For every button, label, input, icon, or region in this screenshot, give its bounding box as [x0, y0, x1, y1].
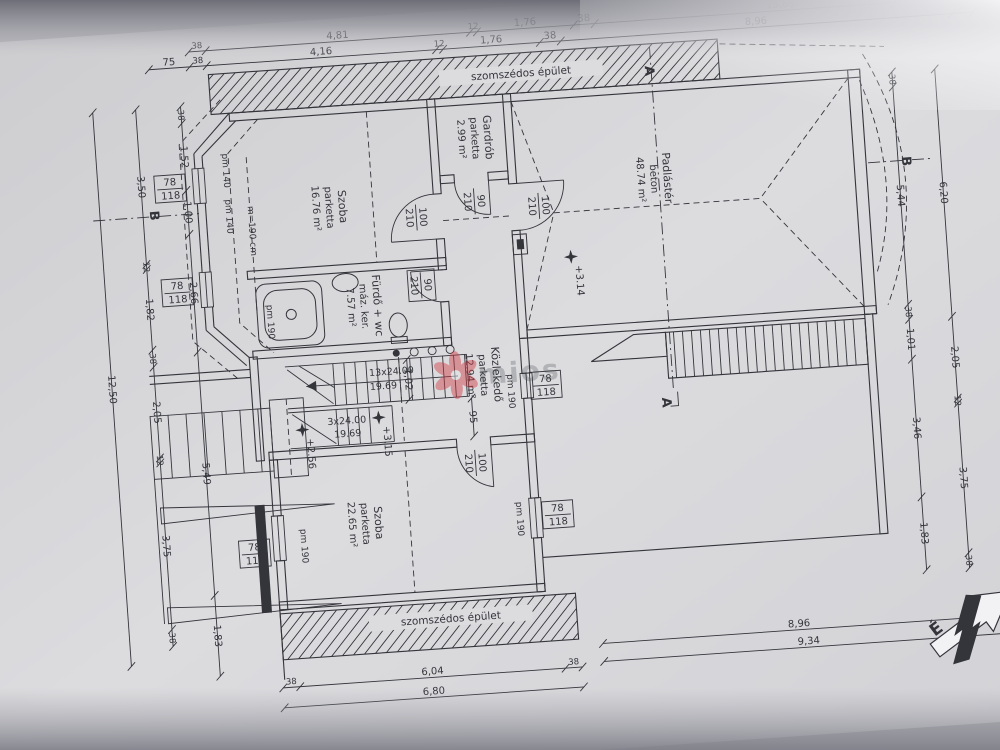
- svg-text:210: 210: [461, 192, 473, 212]
- dimension-label: 38: [166, 632, 177, 643]
- dimension-label: 38: [175, 109, 186, 120]
- dimension-label: 38: [568, 657, 579, 668]
- floor-plan-canvas: 384,81121,763815,6675384,16121,76388,963…: [0, 0, 1000, 750]
- section-marker-b-right: B: [898, 156, 914, 167]
- svg-text:100: 100: [539, 196, 551, 216]
- section-marker-b-left: B: [146, 210, 162, 221]
- dimension-label: 8,96: [788, 618, 811, 631]
- svg-text:Szoba: Szoba: [371, 506, 386, 540]
- dimension-label: 38: [902, 306, 913, 317]
- room-label-gardrob: Gardrób parketta 2.99 m²: [454, 115, 496, 162]
- svg-text:118: 118: [536, 387, 556, 399]
- svg-text:118: 118: [161, 190, 181, 202]
- level-value: +3.15: [380, 426, 393, 457]
- dimension-label: 12,50: [105, 375, 118, 404]
- dimension-label: 1,83: [917, 522, 930, 545]
- floor-plan-sheet: 384,81121,763815,6675384,16121,76388,963…: [0, 0, 1000, 750]
- dimension-label: 12: [140, 261, 151, 272]
- dimension-label: 38: [963, 555, 974, 566]
- svg-text:78: 78: [170, 281, 183, 293]
- dimension-label: 3,46: [910, 417, 923, 440]
- svg-text:100: 100: [416, 207, 428, 227]
- watermark-text: mios: [477, 353, 562, 392]
- dimension-label: 1,52: [177, 146, 190, 169]
- svg-text:78: 78: [163, 177, 176, 189]
- svg-text:118: 118: [246, 555, 266, 567]
- photo-of-floor-plan: 384,81121,763815,6675384,16121,76388,963…: [0, 0, 1000, 750]
- svg-text:78: 78: [248, 542, 261, 554]
- dimension-label: 12: [952, 395, 963, 406]
- level-value: +3.14: [573, 265, 586, 296]
- svg-text:Szoba: Szoba: [335, 190, 350, 224]
- dimension-label: 38: [147, 353, 158, 364]
- svg-text:210: 210: [403, 208, 415, 228]
- dimension-label: 1,83: [211, 624, 224, 647]
- dimension-label: 1,82: [143, 298, 156, 321]
- stair-label-2b: 19.69: [334, 428, 362, 441]
- svg-text:118: 118: [549, 516, 569, 528]
- dimension-label: 12: [154, 455, 165, 466]
- dimension-label: 3,50: [134, 176, 147, 199]
- svg-text:100: 100: [475, 453, 487, 473]
- svg-text:118: 118: [168, 294, 188, 306]
- dimension-label: 75: [162, 57, 175, 69]
- dimension-label: 5,44: [894, 184, 907, 207]
- dimension-label: 1,00: [181, 201, 194, 224]
- level-value: +2.56: [304, 438, 317, 469]
- dimension-label: 2,05: [150, 401, 163, 424]
- svg-text:90: 90: [421, 278, 433, 291]
- svg-text:90: 90: [474, 194, 486, 207]
- dimension-label: 6,20: [937, 181, 950, 204]
- svg-text:210: 210: [407, 276, 419, 296]
- dimension-label: 6,04: [421, 666, 444, 679]
- section-marker-a-bottom: A: [658, 397, 674, 408]
- stair-label-1b: 19.69: [370, 380, 398, 393]
- dimension-label: 3,75: [957, 466, 970, 489]
- photo-highlight: [580, 0, 1000, 110]
- dimension-label: 95: [466, 410, 478, 423]
- dimension-label: 2,05: [948, 346, 961, 369]
- dimension-label: 5,49: [199, 462, 212, 485]
- svg-text:beton: beton: [647, 164, 660, 194]
- dimension-label: 9,34: [797, 635, 820, 648]
- photo-shadow-bottom: [0, 688, 1000, 750]
- dimension-label: 1,01: [904, 328, 917, 351]
- svg-text:210: 210: [525, 196, 537, 216]
- svg-text:210: 210: [462, 454, 474, 474]
- dimension-label: 38: [286, 677, 297, 688]
- svg-text:78: 78: [551, 503, 564, 515]
- dimension-label: 3,75: [159, 535, 172, 558]
